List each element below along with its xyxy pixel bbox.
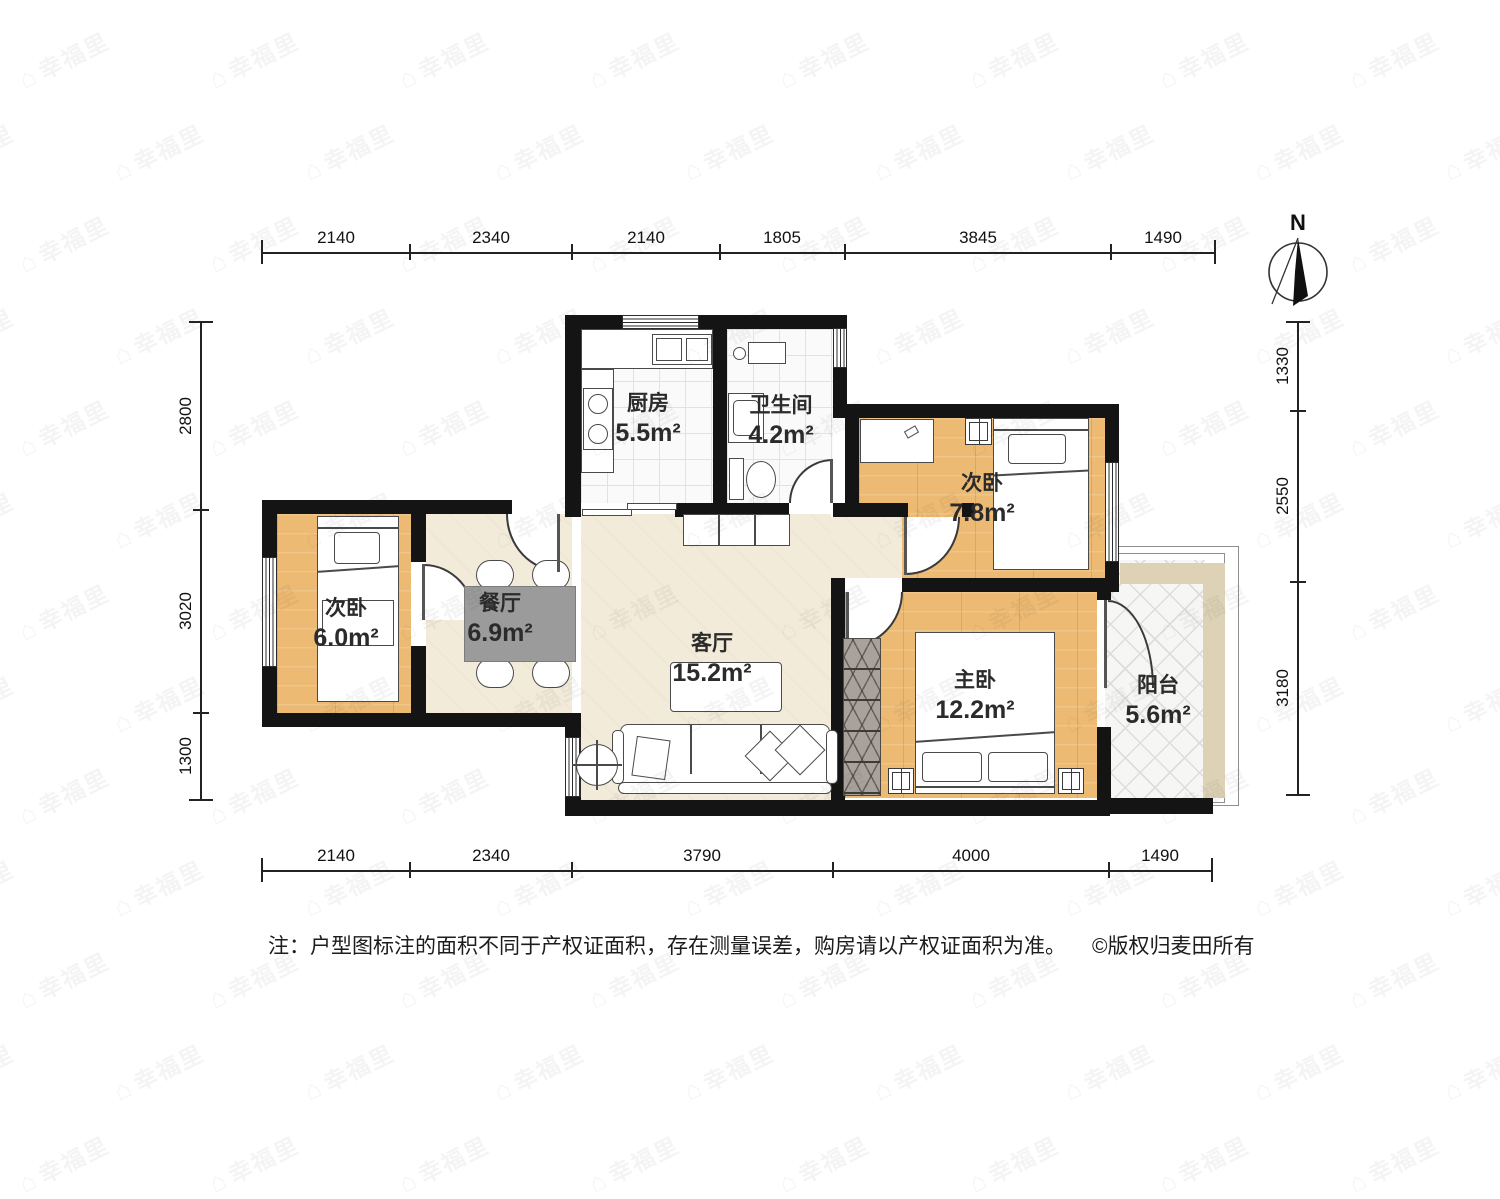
watermark-text: 幸福里 <box>605 1132 684 1188</box>
wall-segment <box>1105 404 1119 462</box>
dim-tick <box>571 862 573 878</box>
dining-chair <box>532 658 570 688</box>
wall-segment <box>262 500 277 557</box>
kitchen-window <box>622 315 699 329</box>
watermark: ⌂幸福里 <box>582 1127 684 1199</box>
room-area: 5.5m² <box>615 417 680 450</box>
watermark: ⌂幸福里 <box>772 1127 874 1199</box>
bed-base-line <box>915 786 1055 788</box>
wall-segment <box>833 315 847 328</box>
bedroom-right-door <box>904 517 907 575</box>
bedroom-left-door <box>422 564 425 620</box>
compass-icon <box>1262 234 1334 310</box>
disclaimer-note: 注：户型图标注的面积不同于产权证面积，存在测量误差，购房请以产权证面积为准。©版… <box>268 930 1254 960</box>
bed-pillow <box>334 532 380 564</box>
room-name: 卫生间 <box>748 392 813 419</box>
wall-segment <box>1097 578 1111 600</box>
wall-segment <box>411 646 426 727</box>
dim-label: 2550 <box>1273 477 1293 515</box>
dim-tick <box>719 244 721 260</box>
house-icon: ⌂ <box>14 1164 43 1199</box>
balcony-ledge <box>1203 563 1225 798</box>
dimension-line-right <box>1297 322 1299 795</box>
watermark: ⌂幸福里 <box>202 1127 304 1199</box>
dimension-line-top <box>262 252 1215 254</box>
wall-segment <box>845 503 908 517</box>
dim-label: 3845 <box>959 228 997 248</box>
room-label-kitchen: 厨房 5.5m² <box>615 390 680 450</box>
bathroom-door <box>830 459 833 503</box>
balcony-door <box>1104 600 1107 688</box>
room-name: 主卧 <box>935 667 1014 694</box>
washing-machine-door <box>733 347 746 360</box>
house-icon: ⌂ <box>394 1164 423 1199</box>
kitchen-sink-basin <box>686 338 708 361</box>
dim-tick <box>193 509 209 511</box>
dim-tick <box>832 862 834 878</box>
dim-tick <box>189 799 213 801</box>
dim-label: 1300 <box>176 737 196 775</box>
dim-label: 2140 <box>627 228 665 248</box>
room-area: 6.0m² <box>313 622 378 655</box>
dim-label: 2140 <box>317 846 355 866</box>
dim-tick <box>409 862 411 878</box>
hallway-floor <box>831 517 902 578</box>
watermark-text: 幸福里 <box>225 1132 304 1188</box>
disclaimer-text: 注：户型图标注的面积不同于产权证面积，存在测量误差，购房请以产权证面积为准。 <box>268 935 1066 958</box>
dimension-line-left <box>200 322 202 800</box>
room-name: 客厅 <box>672 630 751 657</box>
kitchen-sliding-door <box>627 503 677 510</box>
sofa-chaise-cushion <box>631 736 670 780</box>
room-label-bathroom: 卫生间 4.2m² <box>748 392 813 452</box>
nightstand-icon <box>1058 768 1084 794</box>
watermark-text: 幸福里 <box>415 1132 494 1188</box>
wall-segment <box>411 500 426 562</box>
wall-segment <box>262 713 426 727</box>
wall-segment <box>262 500 412 514</box>
dim-label: 1330 <box>1273 347 1293 385</box>
house-icon: ⌂ <box>1344 1164 1373 1199</box>
floor-lamp-cross <box>596 740 598 790</box>
room-area: 12.2m² <box>935 694 1014 727</box>
watermark: ⌂幸福里 <box>1152 1127 1254 1199</box>
room-name: 次卧 <box>313 595 378 622</box>
dimension-line-bottom <box>262 870 1212 872</box>
room-area: 5.6m² <box>1125 699 1190 732</box>
dim-tick <box>571 244 573 260</box>
compass-north-label: N <box>1262 210 1334 236</box>
sofa-skirt <box>618 782 832 794</box>
watermark: ⌂幸福里 <box>1342 1127 1444 1199</box>
wall-segment <box>845 404 859 517</box>
copyright-text: ©版权归麦田所有 <box>1092 935 1254 958</box>
wall-segment <box>1097 727 1111 800</box>
room-name: 餐厅 <box>467 590 532 617</box>
dim-label: 2140 <box>317 228 355 248</box>
toilet-tank <box>729 458 744 500</box>
dim-tick <box>189 321 213 323</box>
entry-door <box>557 514 560 572</box>
cabinet-icon <box>965 418 992 445</box>
dim-tick <box>1286 794 1310 796</box>
sofa-cushion-line <box>690 724 692 774</box>
watermark-text: 幸福里 <box>985 1132 1064 1188</box>
dim-label: 1805 <box>763 228 801 248</box>
dim-label: 2340 <box>472 228 510 248</box>
dim-tick <box>1286 321 1310 323</box>
bed-headboard-line <box>993 429 1089 431</box>
wall-segment <box>565 315 581 517</box>
dim-tick <box>1290 581 1306 583</box>
toilet-bowl <box>746 461 776 498</box>
watermark: ⌂幸福里 <box>962 1127 1064 1199</box>
dim-tick <box>409 244 411 260</box>
dim-tick <box>193 712 209 714</box>
wall-segment <box>1097 798 1213 814</box>
dim-tick <box>1110 244 1112 260</box>
dim-tick <box>1108 862 1110 878</box>
room-label-balcony: 阳台 5.6m² <box>1125 672 1190 732</box>
bedroom-left-window <box>262 557 277 667</box>
room-name: 阳台 <box>1125 672 1190 699</box>
nightstand-icon <box>888 768 914 794</box>
desk <box>860 419 934 463</box>
bathroom-window <box>833 328 847 368</box>
house-icon: ⌂ <box>584 1164 613 1199</box>
wall-segment <box>902 578 1111 592</box>
dim-label: 1490 <box>1144 228 1182 248</box>
bed-pillow <box>988 752 1048 782</box>
stove-burner <box>588 424 608 444</box>
dim-tick <box>261 858 263 882</box>
dim-tick <box>844 244 846 260</box>
tv-cabinet-divider <box>754 514 756 546</box>
house-icon: ⌂ <box>204 1164 233 1199</box>
room-area: 7.8m² <box>949 497 1014 530</box>
wall-segment <box>565 800 1110 816</box>
dim-label: 4000 <box>952 846 990 866</box>
tv-cabinet-divider <box>718 514 720 546</box>
bed-pillow <box>922 752 982 782</box>
dining-chair <box>476 658 514 688</box>
dim-label: 2800 <box>176 397 196 435</box>
room-area: 4.2m² <box>748 419 813 452</box>
stove-burner <box>588 394 608 414</box>
room-label-dining: 餐厅 6.9m² <box>467 590 532 650</box>
watermark: ⌂幸福里 <box>392 1127 494 1199</box>
wall-segment <box>713 315 727 517</box>
house-icon: ⌂ <box>774 1164 803 1199</box>
house-icon: ⌂ <box>964 1164 993 1199</box>
wall-segment <box>426 713 572 727</box>
dim-label: 1490 <box>1141 846 1179 866</box>
room-label-bedroom-right: 次卧 7.8m² <box>949 470 1014 530</box>
washing-machine <box>748 342 786 364</box>
room-label-living: 客厅 15.2m² <box>672 630 751 690</box>
wall-segment <box>845 404 1111 418</box>
dim-label: 2340 <box>472 846 510 866</box>
wardrobe <box>843 638 881 796</box>
dim-label: 3020 <box>176 592 196 630</box>
room-area: 6.9m² <box>467 617 532 650</box>
room-area: 15.2m² <box>672 657 751 690</box>
bed-pillow <box>1008 434 1066 464</box>
wall-segment <box>412 500 512 514</box>
tv-cabinet <box>683 514 790 546</box>
sofa-armrest <box>826 730 838 784</box>
house-icon: ⌂ <box>1154 1164 1183 1199</box>
watermark: ⌂幸福里 <box>12 1127 114 1199</box>
watermark-text: 幸福里 <box>1365 1132 1444 1188</box>
watermark-text: 幸福里 <box>1175 1132 1254 1188</box>
watermark-text: 幸福里 <box>35 1132 114 1188</box>
dim-tick <box>1214 240 1216 264</box>
dim-label: 3180 <box>1273 669 1293 707</box>
dim-tick <box>1211 858 1213 882</box>
room-name: 厨房 <box>615 390 680 417</box>
kitchen-sink-basin <box>656 338 682 361</box>
watermark-text: 幸福里 <box>795 1132 874 1188</box>
bedroom-right-window <box>1105 462 1119 562</box>
wall-segment <box>565 713 581 737</box>
room-name: 次卧 <box>949 470 1014 497</box>
room-label-bedroom-left: 次卧 6.0m² <box>313 595 378 655</box>
dim-tick <box>261 240 263 264</box>
kitchen-sliding-door <box>582 509 632 516</box>
dim-label: 3790 <box>683 846 721 866</box>
dim-tick <box>1290 410 1306 412</box>
room-label-master: 主卧 12.2m² <box>935 667 1014 727</box>
bed-headboard-line <box>317 527 399 529</box>
